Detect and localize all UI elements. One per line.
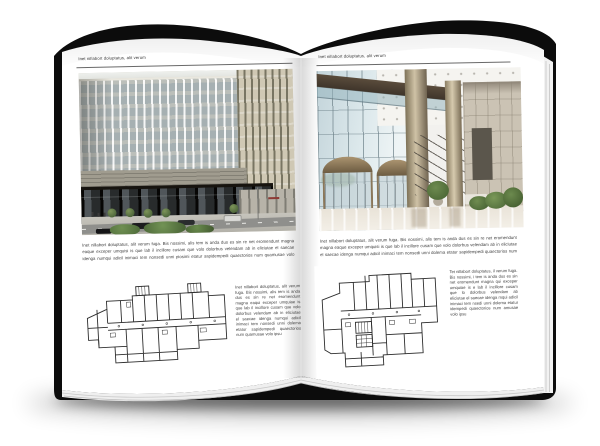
floor-plan-drawing bbox=[314, 264, 446, 378]
building-exterior-photo bbox=[79, 69, 296, 235]
floor-plan-walls bbox=[86, 282, 228, 365]
left-page: Inet nillabort doluptatus, alit verum bbox=[62, 41, 311, 392]
car bbox=[224, 215, 242, 222]
dark-doorway bbox=[472, 128, 493, 180]
pedestrian bbox=[98, 213, 100, 217]
plan-caption-column: Inet nillabort doluptatus, alit verum fu… bbox=[235, 284, 301, 356]
revolving-door-glass bbox=[323, 172, 374, 209]
shrub bbox=[110, 224, 140, 235]
pedestrian bbox=[104, 213, 106, 217]
header-rule bbox=[76, 63, 292, 69]
red-awning bbox=[268, 197, 279, 199]
pedestrian bbox=[91, 212, 93, 216]
lobby-interior-photo bbox=[317, 67, 524, 231]
floor-plan-drawing bbox=[77, 279, 235, 372]
round-column bbox=[445, 80, 464, 218]
running-head: Inet nillabort doluptatus, alit verum bbox=[78, 55, 146, 61]
potted-plant bbox=[427, 181, 449, 200]
facade-shadow bbox=[79, 76, 243, 173]
book-mockup: Inet nillabort doluptatus, alit verum bbox=[0, 0, 600, 446]
revolving-door bbox=[322, 156, 373, 209]
intro-paragraph: Inet nillabort doluptatus, alit verum fu… bbox=[320, 234, 517, 259]
floor-plan-walls bbox=[321, 272, 440, 368]
column-reflection bbox=[411, 208, 426, 227]
running-head: Inet nillabort doluptatus, alit verum bbox=[318, 53, 386, 59]
column-reflection bbox=[449, 207, 460, 226]
plan-caption-column: Tet nillabort doluptatus, il verum fuga.… bbox=[449, 268, 518, 340]
shrub bbox=[186, 224, 214, 234]
right-page: Inet nillabort doluptatus, alit verum bbox=[306, 38, 559, 393]
intro-paragraph: Inet nillabort doluptatus, alit verum fu… bbox=[82, 238, 294, 263]
header-rule bbox=[316, 61, 510, 66]
revolving-door-canopy bbox=[322, 156, 372, 173]
ceiling-cove-shadow bbox=[463, 81, 521, 94]
